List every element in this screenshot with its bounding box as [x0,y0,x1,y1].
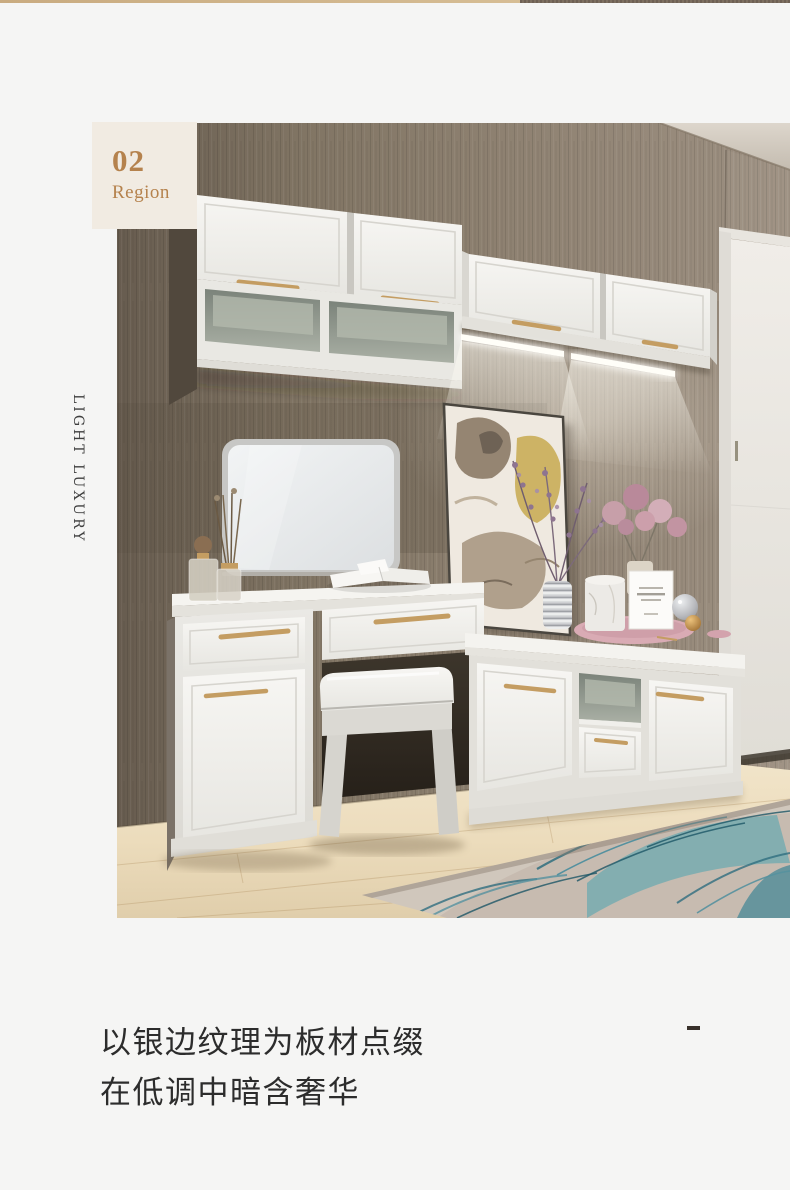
door-handle [735,441,738,461]
decor-pink-dish [707,630,731,638]
top-edge-right [520,0,790,3]
wall-mirror [222,439,400,576]
vertical-tagline: LIGHT LUXURY [70,394,86,569]
caption-line-1: 以银边纹理为板材点缀 [100,1018,425,1068]
room-photo [117,123,790,918]
top-edge-left [0,0,520,3]
decor-perfume-box [629,571,673,629]
caption-line-2: 在低调中暗含奢华 [100,1068,425,1118]
top-image-edge [0,0,790,3]
decor-gold-sphere [685,615,701,631]
tv-cabinet [465,633,745,829]
caption-dash [687,1026,700,1030]
section-badge: 02 Region [92,122,197,229]
section-label: Region [112,182,197,204]
section-number: 02 [112,146,197,176]
caption-block: 以银边纹理为板材点缀 在低调中暗含奢华 [100,1018,425,1118]
cabinet-door [477,663,572,791]
